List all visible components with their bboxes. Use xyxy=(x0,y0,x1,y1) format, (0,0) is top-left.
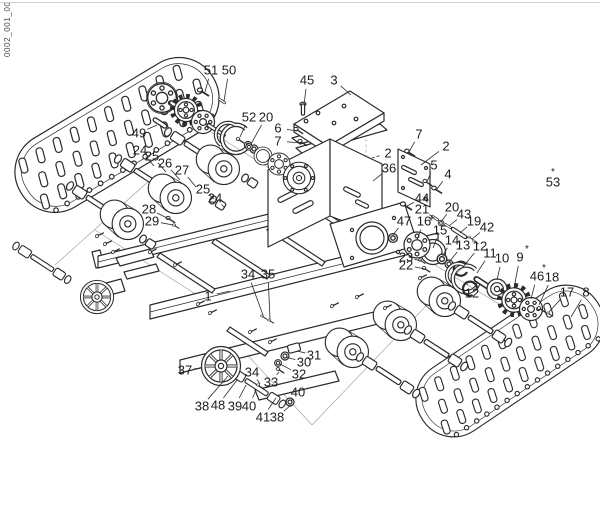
leader-line xyxy=(477,261,485,273)
bolt-22 xyxy=(422,267,430,273)
part-label-24: 24 xyxy=(208,191,222,206)
part-label-8: 8 xyxy=(582,285,589,300)
washer-20 xyxy=(246,144,252,150)
part-label-38: 38 xyxy=(270,410,284,425)
star-mark: * xyxy=(551,167,555,178)
part-label-45: 45 xyxy=(300,73,314,88)
part-label-22: 22 xyxy=(399,258,413,273)
part-label-40: 40 xyxy=(242,399,256,414)
bolt-52 xyxy=(236,138,244,144)
leader-line xyxy=(224,79,228,101)
sprocket-disc xyxy=(192,111,215,134)
bolt-28 xyxy=(166,216,175,222)
part-label-4: 4 xyxy=(444,167,451,182)
leader-line xyxy=(441,214,447,222)
leader-line xyxy=(449,220,457,226)
leader-line xyxy=(449,252,457,262)
leader-line xyxy=(251,125,262,144)
part-label-3: 3 xyxy=(330,73,337,88)
leader-line xyxy=(280,364,291,370)
track-roller xyxy=(325,328,368,367)
part-label-33: 33 xyxy=(264,375,278,390)
leader-line xyxy=(297,351,305,353)
bearing-housing xyxy=(283,162,315,194)
part-label-38: 38 xyxy=(195,399,209,414)
part-label-36: 36 xyxy=(382,161,396,176)
star-mark: * xyxy=(429,216,433,227)
part-label-29: 29 xyxy=(145,214,159,229)
part-label-27: 27 xyxy=(175,163,189,178)
rubber-track-left xyxy=(0,43,233,227)
part-label-5: 5 xyxy=(430,158,437,173)
bolt-45 xyxy=(300,102,306,115)
part-label-35: 35 xyxy=(261,267,275,282)
leader-line xyxy=(188,177,196,187)
leader-line xyxy=(239,385,246,398)
part-label-18: 18 xyxy=(545,270,559,285)
star-mark: * xyxy=(525,244,529,255)
part-label-37: 37 xyxy=(178,363,192,378)
screw-4 xyxy=(432,186,442,193)
part-label-2: 2 xyxy=(442,139,449,154)
part-label-26: 26 xyxy=(158,156,172,171)
part-label-10: 10 xyxy=(495,251,509,266)
part-label-12: 12 xyxy=(465,286,479,301)
leader-line xyxy=(253,390,256,398)
exploded-parts-diagram: 5150453522067492425262725242829722365453… xyxy=(0,0,600,517)
part-label-17: 17 xyxy=(560,285,574,300)
leader-line xyxy=(531,285,535,299)
leader-line xyxy=(161,223,173,225)
part-label-34: 34 xyxy=(245,365,259,380)
idler-wheel xyxy=(80,280,113,313)
part-label-7: 7 xyxy=(415,127,422,142)
idler-wheel-37 xyxy=(202,347,241,386)
part-label-48: 48 xyxy=(211,398,225,413)
leader-line xyxy=(497,267,500,280)
bushing-30 xyxy=(281,352,289,360)
leader-line xyxy=(257,379,260,384)
leader-line xyxy=(407,202,414,206)
part-label-50: 50 xyxy=(222,63,236,78)
part-label-13: 13 xyxy=(456,238,470,253)
part-label-7: 7 xyxy=(274,134,281,149)
parts-diagram-sheet: 0002_001_00 xyxy=(0,0,600,517)
part-label-9: 9 xyxy=(516,250,523,265)
leader-line xyxy=(372,156,379,158)
screw-34 xyxy=(261,315,267,319)
part-label-32: 32 xyxy=(292,367,306,382)
washer-32 xyxy=(275,360,282,367)
track-roller xyxy=(100,200,143,239)
part-label-49: 49 xyxy=(132,126,146,141)
screw-35 xyxy=(268,319,274,323)
part-label-42: 42 xyxy=(480,220,494,235)
leader-line xyxy=(437,181,443,189)
part-label-52: 52 xyxy=(242,110,256,125)
part-label-2: 2 xyxy=(384,146,391,161)
part-label-51: 51 xyxy=(204,63,218,78)
part-label-39: 39 xyxy=(228,399,242,414)
screw-33 xyxy=(276,368,284,374)
part-label-47: 47 xyxy=(397,214,411,229)
part-label-34: 34 xyxy=(241,267,255,282)
part-label-41: 41 xyxy=(256,410,270,425)
part-label-20: 20 xyxy=(259,110,273,125)
track-roller xyxy=(373,301,416,340)
leader-line xyxy=(409,142,415,152)
part-label-1: 1 xyxy=(204,289,211,304)
screw-29 xyxy=(172,224,179,229)
part-label-40: 40 xyxy=(291,385,305,400)
